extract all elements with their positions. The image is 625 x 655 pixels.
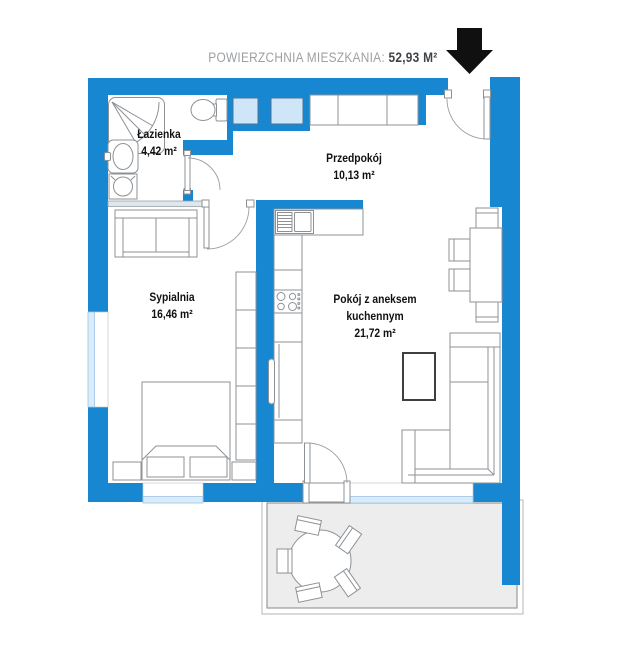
window-left-jamb [94,312,108,407]
washing-machine [109,174,137,199]
room-name: Łazienka [137,126,181,143]
entrance-arrow-icon [446,28,493,74]
entry-door-leaf [484,97,490,139]
dining-chair [449,239,470,261]
nightstand [113,462,141,480]
shaft-window [271,98,303,124]
wall-bottom-right-stub [473,483,502,502]
room-name: Pokój z aneksem [333,291,416,308]
kitchen-counter-low [274,313,302,342]
bedroom-door [202,200,254,249]
room-label-przedpokoj: Przedpokój 10,13 m² [326,150,382,184]
bathroom-door-leaf [185,156,190,191]
room-label-sypialnia: Sypialnia 16,46 m² [149,289,194,323]
stove [274,290,302,313]
wall-divider [256,200,274,502]
room-name: Przedpokój [326,150,382,167]
wall-right-lower [502,207,520,585]
wall-wardrobe-stub [418,95,426,125]
wall-right-upper [490,77,520,207]
entry-door [445,90,491,139]
sink [105,140,139,173]
wall-bottom-bedroom-left [88,483,143,502]
room-area: 21,72 m² [333,325,416,342]
bedroom-sofa [115,210,197,257]
kitchen-cabinet-bottom [274,420,302,443]
wall-bottom-center [203,483,303,502]
hallway-wardrobe [310,95,418,125]
dining-chair [476,208,498,228]
balcony-door [303,443,350,503]
window-bedroom [143,497,203,504]
room-area: 4,42 m² [137,143,181,160]
dining-set [449,208,502,322]
wall-partition-bedroom [108,201,204,207]
room-area: 16,46 m² [149,306,194,323]
bedroom-door-leaf [204,207,209,248]
kitchen-sink [276,211,314,234]
nightstand [232,462,256,480]
bed [142,382,230,480]
window-left [88,312,95,407]
window-living [350,497,473,504]
bedroom-wardrobe [236,272,256,460]
title-value: 52,93 M² [384,50,437,65]
dining-chair [449,269,470,291]
terrace-chair [277,549,292,573]
room-area: 10,13 m² [326,167,382,184]
wall-bathroom-right [227,95,233,142]
wall-top [88,78,448,95]
pillow [190,457,227,477]
kitchen-cabinet [274,235,302,290]
room-label-pokoj: Pokój z aneksem kuchennym 21,72 m² [333,291,416,342]
balcony-door-frame [303,483,350,502]
floor-plan: POWIERZCHNIA MIESZKANIA: 52,93 M² Łazien… [0,0,625,655]
title-label: POWIERZCHNIA MIESZKANIA: [208,50,385,65]
room-name: Sypialnia [149,289,194,306]
coffee-table [403,353,435,400]
dining-chair [476,302,498,322]
fridge [269,342,303,420]
dining-table [470,228,502,302]
bathroom-door [184,151,220,195]
terrace [262,500,523,614]
shaft-window [233,98,258,124]
room-label-lazienka: Łazienka 4,42 m² [137,126,181,160]
balcony-door-leaf [305,443,311,483]
toilet [191,99,227,121]
wall-left-upper [88,78,108,312]
plan-graphics [0,0,625,655]
pillow [147,457,184,477]
room-name: kuchennym [333,308,416,325]
plan-title: POWIERZCHNIA MIESZKANIA: 52,93 M² [208,50,437,65]
